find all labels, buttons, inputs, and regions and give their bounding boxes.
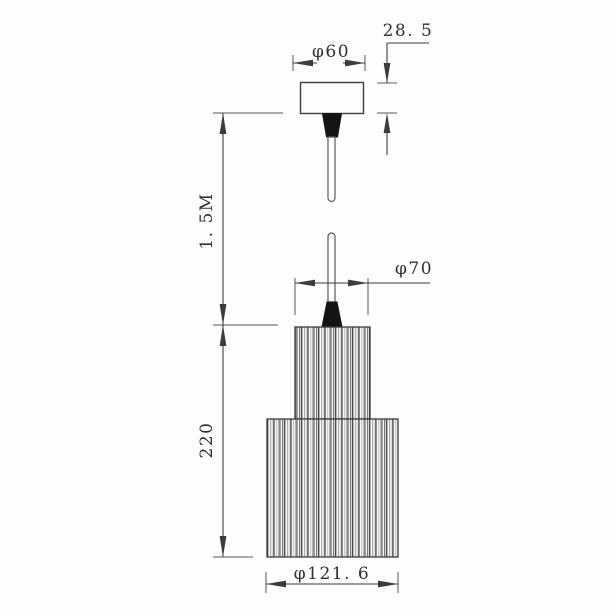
arrowhead-right [348,280,368,287]
arrowhead-down [220,304,227,325]
dim-label-cable-length: 1. 5M [197,192,217,249]
dim-label-canopy-diameter: φ60 [312,42,350,62]
dim-label-canopy-height: 28. 5 [383,21,434,41]
dim-canopy-diameter: φ60 [293,42,365,71]
dim-label-shade-bottom-diameter: φ121. 6 [294,564,370,584]
cable-lower-segment [328,233,335,302]
dim-cable-length: 1. 5M [197,113,283,325]
shade-upper-section [295,327,370,419]
cord-grip-canopy [323,114,342,138]
cord-grip-shade [322,302,342,327]
lamp-assembly [267,83,398,558]
pendant-lamp-dimension-drawing: φ60 28. 5 1. 5M φ70 220 [0,0,610,610]
arrowhead-left [266,581,286,588]
ceiling-canopy [301,83,364,114]
dim-label-shade-height: 220 [197,422,217,459]
dim-label-shade-top-diameter: φ70 [395,259,433,279]
arrowhead-up [220,113,227,134]
arrowhead-right [378,581,398,588]
dim-shade-top-diameter: φ70 [295,259,433,315]
drawing-svg: φ60 28. 5 1. 5M φ70 220 [0,0,610,610]
arrowhead-left [293,60,313,67]
dim-canopy-height: 28. 5 [377,21,433,155]
cable-upper-segment [328,137,335,202]
shade-lower-section [267,419,398,557]
arrowhead-up [220,325,227,346]
dim-shade-height: 220 [197,325,278,557]
dim-shade-bottom-diameter: φ121. 6 [266,564,398,593]
arrowhead-down [384,63,391,83]
arrowhead-down [220,536,227,557]
arrowhead-left [295,280,315,287]
